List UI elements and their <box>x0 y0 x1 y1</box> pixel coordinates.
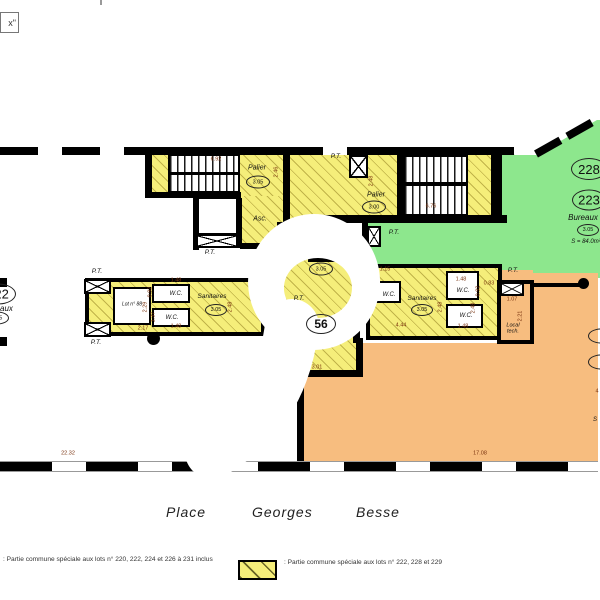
oval-3-05-central: 3.05 <box>309 263 333 276</box>
label-lot-88: Lot n° 88 <box>122 303 142 308</box>
oval-3-05-west: 3.05 <box>0 312 9 325</box>
floor-plan-page: x" <box>0 0 600 600</box>
office-area-orange-main <box>363 343 533 463</box>
label-wc-3: W.C. <box>382 292 395 298</box>
duct-window-box <box>84 322 111 337</box>
window-opening <box>515 147 539 155</box>
wall <box>0 147 152 155</box>
label-bureaux-east: Bureaux <box>568 214 598 222</box>
dim-1-48-b: 1.48 <box>171 324 182 330</box>
label-pt-5: P.T. <box>91 340 101 347</box>
common-area-palier-east <box>287 150 403 223</box>
label-pt-3: P.T. <box>389 230 399 237</box>
dim-2-48-c: 2.48 <box>438 302 444 313</box>
column-dot-east <box>578 278 589 289</box>
wall <box>0 461 598 472</box>
label-palier-east: Palier <box>367 192 385 199</box>
dim-6-76: 6.76 <box>426 204 437 210</box>
duct-window-box <box>84 279 111 294</box>
wall <box>397 153 403 219</box>
oval-lot-222: 222 <box>0 284 16 305</box>
wall <box>307 215 507 223</box>
wall <box>0 337 7 346</box>
duct-window-box <box>367 226 381 247</box>
office-area-orange-southwest <box>304 376 363 463</box>
dim-1-48-c: 1.48 <box>456 277 467 283</box>
label-pt-4: P.T. <box>92 269 102 276</box>
label-palier-west: Palier <box>248 165 266 172</box>
label-elevator: Asc. <box>253 216 267 223</box>
window-opening <box>277 284 283 296</box>
legend-item-1: : Partie commune spéciale aux lots n° 22… <box>3 556 213 563</box>
legend-swatch-yellow <box>238 560 277 580</box>
oval-3-00-palier-east: 3.00 <box>362 201 386 214</box>
oval-3-05-sanitaires-west: 3.05 <box>205 304 227 316</box>
column-dot-west <box>147 332 160 345</box>
label-pt-7: P.T. <box>294 296 304 303</box>
oval-room-56: 56 <box>306 314 336 334</box>
wall <box>145 150 152 198</box>
dim-1-48-a: 1.48 <box>171 278 182 284</box>
dim-2-29: 2.29 <box>143 302 149 313</box>
wall <box>311 256 360 262</box>
dim-1-48-d: 1.48 <box>458 324 469 330</box>
oval-3-05-east: 3.05 <box>577 224 599 236</box>
dim-2-48-a: 2.48 <box>369 176 375 187</box>
label-sanitaires-west: Sanitaires <box>198 294 227 301</box>
label-pt-2: P.T. <box>331 154 341 161</box>
street-word-besse: Besse <box>356 504 400 520</box>
street-word-place: Place <box>166 504 206 520</box>
elevator-shaft <box>197 197 239 235</box>
wall <box>277 336 309 343</box>
dim-22-32: 22.32 <box>61 451 75 457</box>
label-sanitaires-east: Sanitaires <box>408 296 437 303</box>
label-surface-east: S = 84.0m² <box>571 239 600 245</box>
duct-window-box <box>500 282 524 296</box>
staircase-west <box>168 154 240 193</box>
wall <box>356 338 363 374</box>
dim-0-83: 0.83 <box>484 281 495 287</box>
label-pt-6: P.T. <box>508 268 518 275</box>
street-word-georges: Georges <box>252 504 313 520</box>
office-area-orange-east <box>533 273 598 463</box>
duct-window-box <box>196 234 238 248</box>
legend-item-2: : Partie commune spéciale aux lots n° 22… <box>284 559 442 566</box>
wall <box>491 147 502 223</box>
dim-0-92-b: 0.92 <box>476 286 482 297</box>
label-wc-2: W.C. <box>165 315 178 321</box>
oval-lot-223: 223 <box>572 190 600 211</box>
wall <box>150 147 323 155</box>
label-wc-1: W.C. <box>169 291 182 297</box>
label-partial-s: S <box>593 417 597 423</box>
dim-1-15: 1.15 <box>380 267 391 273</box>
dim-0-92-a: 0.92 <box>148 287 154 298</box>
oval-3-05-palier-west: 3.05 <box>246 176 270 189</box>
dim-6-92: 6.92 <box>211 157 222 163</box>
dim-2-17: 2.17 <box>138 326 149 332</box>
label-local-tech: Local tech. <box>501 323 525 336</box>
dim-1-07: 1.07 <box>507 297 518 303</box>
dim-1-37: 1.37 <box>151 312 157 323</box>
dim-partial-4: 4 <box>595 389 598 395</box>
oval-lot-228: 228 <box>571 158 600 180</box>
wall <box>283 147 290 252</box>
wall <box>353 256 360 343</box>
dim-3-01: 3.01 <box>312 365 323 371</box>
wall <box>297 370 304 463</box>
wall <box>277 222 283 343</box>
duct-window-box <box>349 155 368 178</box>
dim-2-21: 2.21 <box>518 311 524 322</box>
label-wc-5: W.C. <box>459 313 472 319</box>
dim-2-46: 2.46 <box>274 167 280 178</box>
dim-2-48-b: 2.48 <box>228 302 234 313</box>
wall <box>297 370 363 377</box>
label-pt-1: P.T. <box>205 250 215 257</box>
wall <box>347 147 514 155</box>
dim-17-08: 17.08 <box>473 451 487 457</box>
label-wc-4: W.C. <box>456 288 469 294</box>
dim-4-44: 4.44 <box>396 323 407 329</box>
window-opening <box>277 306 283 318</box>
wall <box>530 283 585 287</box>
oval-3-05-sanitaires-east: 3.05 <box>411 304 433 316</box>
dim-2-48-d: 2.48 <box>471 303 477 314</box>
